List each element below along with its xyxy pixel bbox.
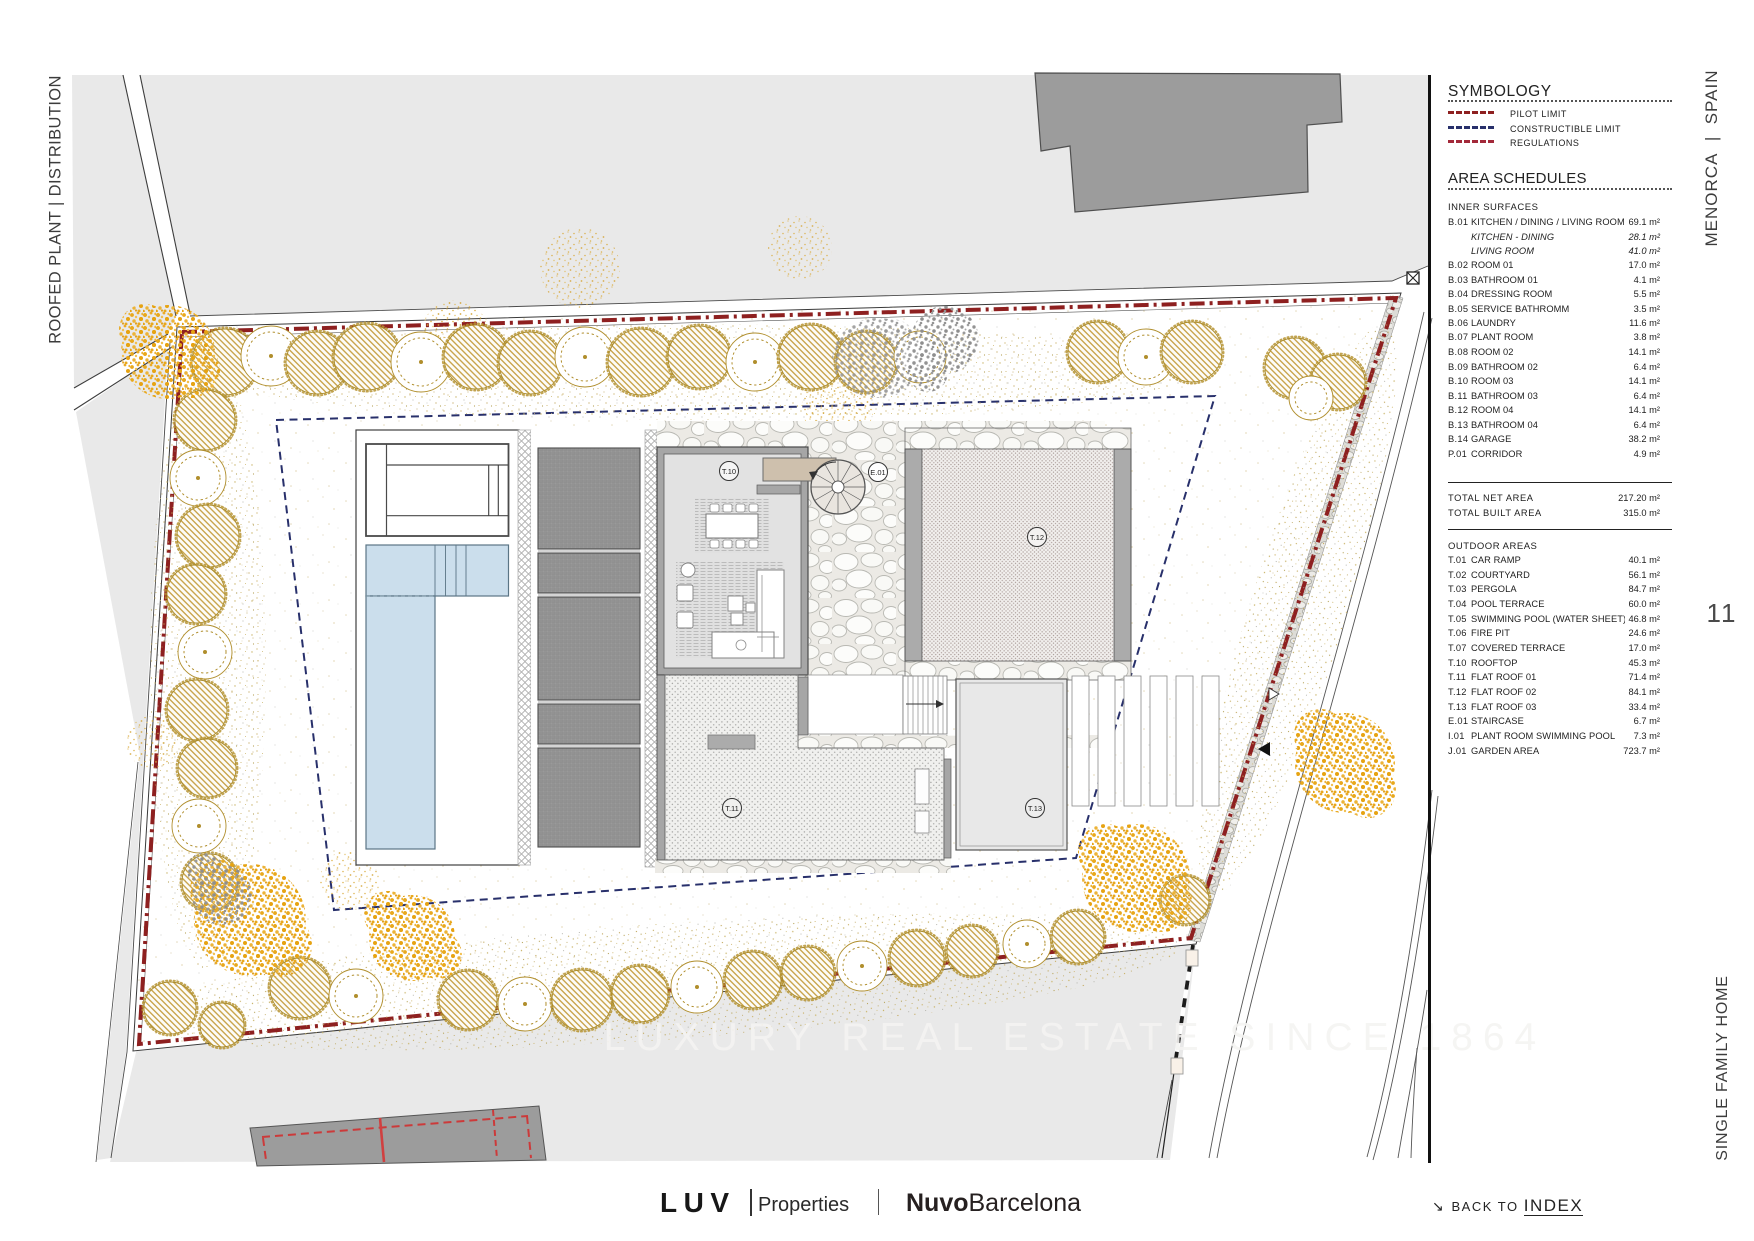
svg-text:T.12: T.12 [1030, 533, 1044, 542]
svg-text:E.01: E.01 [870, 468, 885, 477]
svg-text:T.13: T.13 [1028, 804, 1042, 813]
svg-text:LUXURY REAL ESTATE SINCE 1864: LUXURY REAL ESTATE SINCE 1864 [604, 1016, 1546, 1059]
svg-text:T.10: T.10 [722, 467, 736, 476]
svg-text:T.11: T.11 [725, 804, 739, 813]
